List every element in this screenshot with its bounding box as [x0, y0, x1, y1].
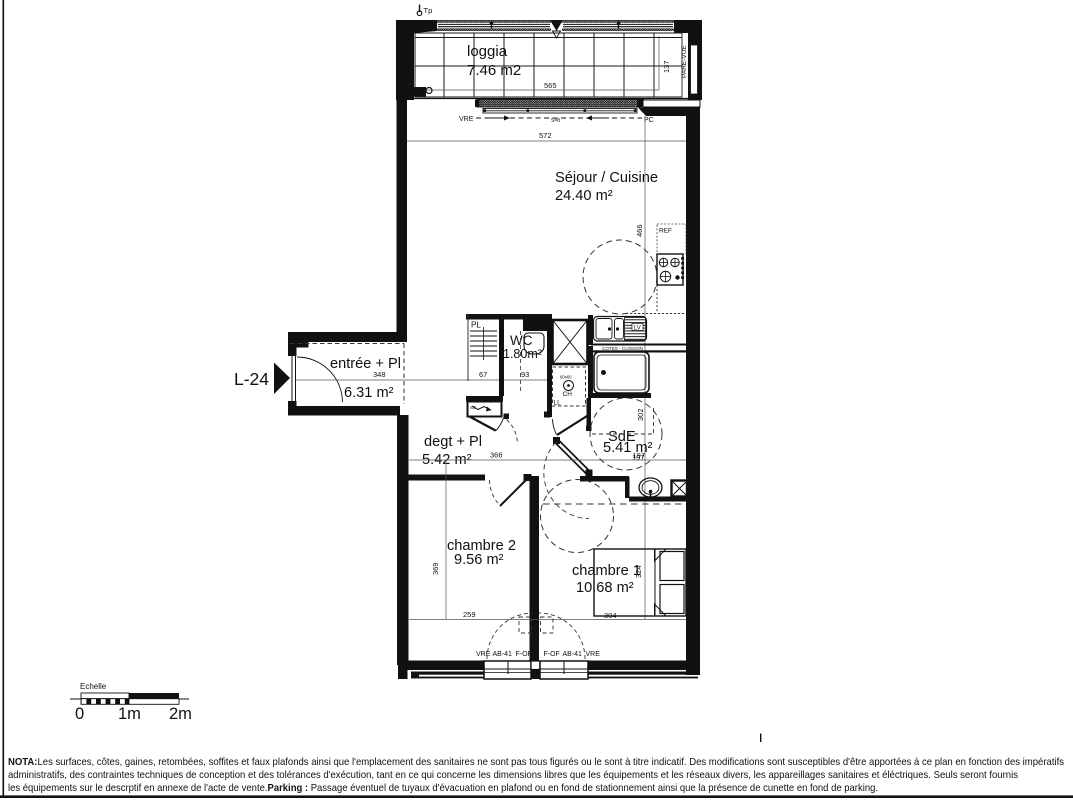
svg-text:6.31 m²: 6.31 m² [344, 385, 394, 401]
svg-text:administratifs, des contrainte: administratifs, des contraintes techniqu… [8, 770, 1018, 781]
svg-text:0: 0 [75, 705, 84, 723]
svg-text:60x60: 60x60 [560, 375, 572, 380]
svg-text:S=8: S=8 [551, 118, 560, 124]
svg-text:les équipements sur le descrpt: les équipements sur le descrptif en anne… [8, 783, 878, 794]
svg-text:259: 259 [463, 610, 476, 619]
svg-text:565: 565 [544, 81, 557, 90]
svg-text:VRE: VRE [586, 651, 601, 658]
svg-text:PL: PL [471, 321, 481, 330]
svg-text:PC: PC [644, 117, 654, 124]
svg-text:F-OF: F-OF [516, 651, 532, 658]
svg-text:VRE: VRE [459, 116, 474, 123]
svg-text:Echelle: Echelle [80, 682, 107, 691]
svg-text:NOTA:Les surfaces, côtes, gain: NOTA:Les surfaces, côtes, gaines, retomb… [8, 757, 1064, 768]
svg-text:AB-41: AB-41 [493, 651, 513, 658]
svg-text:Tp: Tp [424, 6, 433, 15]
svg-text:2m: 2m [169, 705, 192, 723]
svg-text:24.40 m²: 24.40 m² [555, 188, 613, 204]
svg-text:302: 302 [636, 408, 645, 421]
svg-text:324: 324 [634, 565, 643, 578]
svg-text:67: 67 [479, 370, 487, 379]
svg-text:348: 348 [373, 370, 386, 379]
svg-text:366: 366 [490, 451, 503, 460]
svg-text:loggia: loggia [467, 43, 508, 60]
svg-text:93: 93 [521, 370, 529, 379]
svg-text:466: 466 [635, 224, 644, 237]
svg-text:1m: 1m [118, 705, 141, 723]
svg-text:9.56 m²: 9.56 m² [454, 552, 504, 568]
svg-text:5.41 m²: 5.41 m² [603, 440, 653, 456]
svg-text:VRE: VRE [476, 651, 491, 658]
svg-text:LL: LL [554, 400, 562, 407]
svg-text:CH: CH [563, 391, 573, 398]
svg-text:369: 369 [431, 562, 440, 575]
svg-text:197: 197 [633, 451, 646, 460]
svg-text:Séjour / Cuisine: Séjour / Cuisine [555, 170, 658, 186]
svg-text:LV: LV [634, 326, 641, 332]
svg-text:WC: WC [510, 333, 533, 348]
svg-text:entrée + Pl: entrée + Pl [330, 356, 401, 372]
svg-text:137: 137 [662, 60, 671, 73]
svg-text:SB: SB [470, 405, 476, 410]
svg-text:degt + Pl: degt + Pl [424, 434, 482, 450]
svg-text:chambre 1: chambre 1 [572, 563, 641, 579]
svg-text:10.68 m²: 10.68 m² [576, 580, 634, 596]
svg-text:COTES - CUISSON: COTES - CUISSON [602, 346, 643, 351]
svg-text:REF: REF [659, 228, 672, 235]
svg-text:7.46 m2: 7.46 m2 [467, 62, 521, 79]
svg-text:572: 572 [539, 131, 552, 140]
svg-text:F-OF: F-OF [544, 651, 560, 658]
svg-text:L-24: L-24 [234, 369, 269, 389]
svg-text:PARE-VUE: PARE-VUE [681, 45, 688, 78]
svg-text:AB-41: AB-41 [563, 651, 583, 658]
